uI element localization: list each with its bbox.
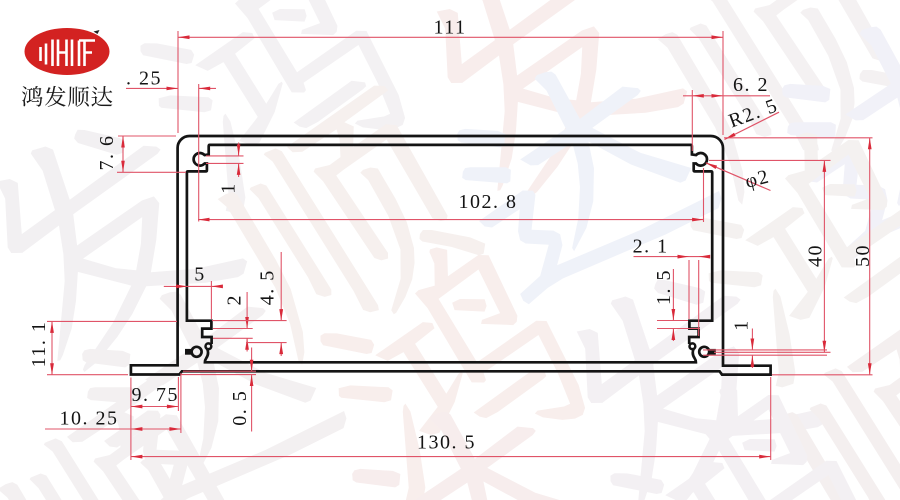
svg-text:40: 40 [804, 244, 826, 267]
svg-text:9. 75: 9. 75 [131, 384, 179, 406]
svg-text:50: 50 [852, 244, 874, 267]
svg-text:1: 1 [218, 182, 240, 194]
svg-text:2. 1: 2. 1 [633, 236, 669, 258]
svg-text:6. 2: 6. 2 [733, 74, 769, 96]
svg-text:111: 111 [433, 17, 466, 39]
svg-text:. 25: . 25 [126, 68, 162, 90]
svg-text:7. 6: 7. 6 [96, 135, 118, 171]
svg-text:102. 8: 102. 8 [459, 191, 518, 213]
svg-text:1: 1 [731, 319, 753, 331]
svg-text:2: 2 [223, 294, 245, 306]
svg-text:5: 5 [194, 264, 206, 286]
svg-text:11. 1: 11. 1 [28, 321, 50, 368]
svg-text:1. 5: 1. 5 [653, 269, 675, 305]
svg-text:0. 5: 0. 5 [229, 390, 251, 426]
svg-text:10. 25: 10. 25 [60, 408, 119, 430]
svg-text:4. 5: 4. 5 [256, 269, 278, 305]
svg-text:130. 5: 130. 5 [417, 432, 476, 454]
